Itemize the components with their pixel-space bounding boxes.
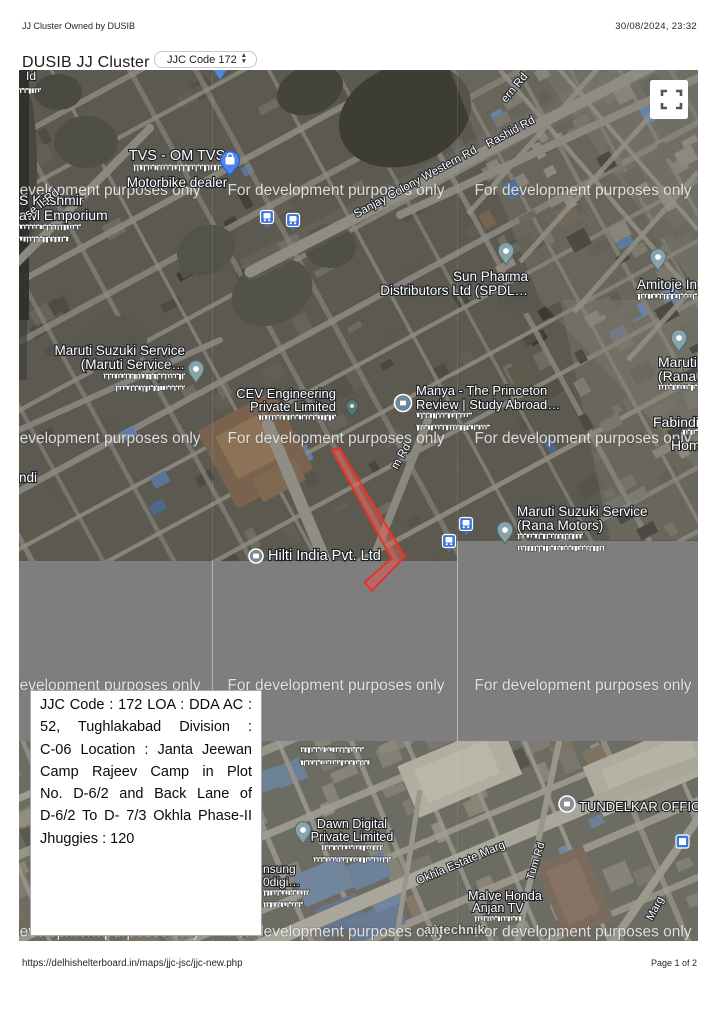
svg-text:Hilti India Pvt. Ltd: Hilti India Pvt. Ltd xyxy=(268,548,381,564)
svg-text:Review | Study Abroad…: Review | Study Abroad… xyxy=(416,397,560,412)
svg-text:Dawn Digital: Dawn Digital xyxy=(317,817,387,831)
svg-text:Maruti Suzuki Service: Maruti Suzuki Service xyxy=(517,504,648,519)
svg-text:(Rana Motors): (Rana Motors) xyxy=(517,518,603,533)
svg-text:Fabindi: Fabindi xyxy=(653,414,699,430)
svg-text:Private Limited: Private Limited xyxy=(311,830,394,844)
svg-text:0digi…: 0digi… xyxy=(263,875,300,889)
svg-text:Manya - The Princeton: Manya - The Princeton xyxy=(416,383,547,398)
svg-text:Motorbike dealer: Motorbike dealer xyxy=(127,175,228,190)
svg-text:(Rana: (Rana xyxy=(658,368,696,384)
svg-text:ndi: ndi xyxy=(19,470,37,485)
svg-text:Amitoje In: Amitoje In xyxy=(637,277,697,292)
svg-text:Private Limited: Private Limited xyxy=(250,399,336,414)
svg-text:For development purposes only: For development purposes only xyxy=(474,430,691,447)
svg-text:Sun Pharma: Sun Pharma xyxy=(453,269,529,284)
svg-text:Distributors Ltd (SPDL…: Distributors Ltd (SPDL… xyxy=(380,283,528,298)
svg-text:(Maruti Service…: (Maruti Service… xyxy=(81,357,185,372)
svg-text:antechnik: antechnik xyxy=(424,922,485,937)
svg-text:TVS - OM TVS: TVS - OM TVS xyxy=(129,148,225,164)
svg-text:For development purposes only: For development purposes only xyxy=(0,430,201,447)
svg-text:For development purposes only: For development purposes only xyxy=(474,924,691,941)
svg-text:Home: Home xyxy=(671,437,709,453)
svg-text:Maruti Suzuki Service: Maruti Suzuki Service xyxy=(54,343,185,358)
svg-text:For development purposes only: For development purposes only xyxy=(474,182,691,199)
svg-text:For development purposes only: For development purposes only xyxy=(227,430,444,447)
svg-text:nsung: nsung xyxy=(263,862,296,876)
svg-text:Anjan TV: Anjan TV xyxy=(472,901,524,915)
svg-text:TUNDELKAR OFFICE: TUNDELKAR OFFICE xyxy=(579,799,709,814)
svg-text:For development purposes only: For development purposes only xyxy=(474,677,691,694)
